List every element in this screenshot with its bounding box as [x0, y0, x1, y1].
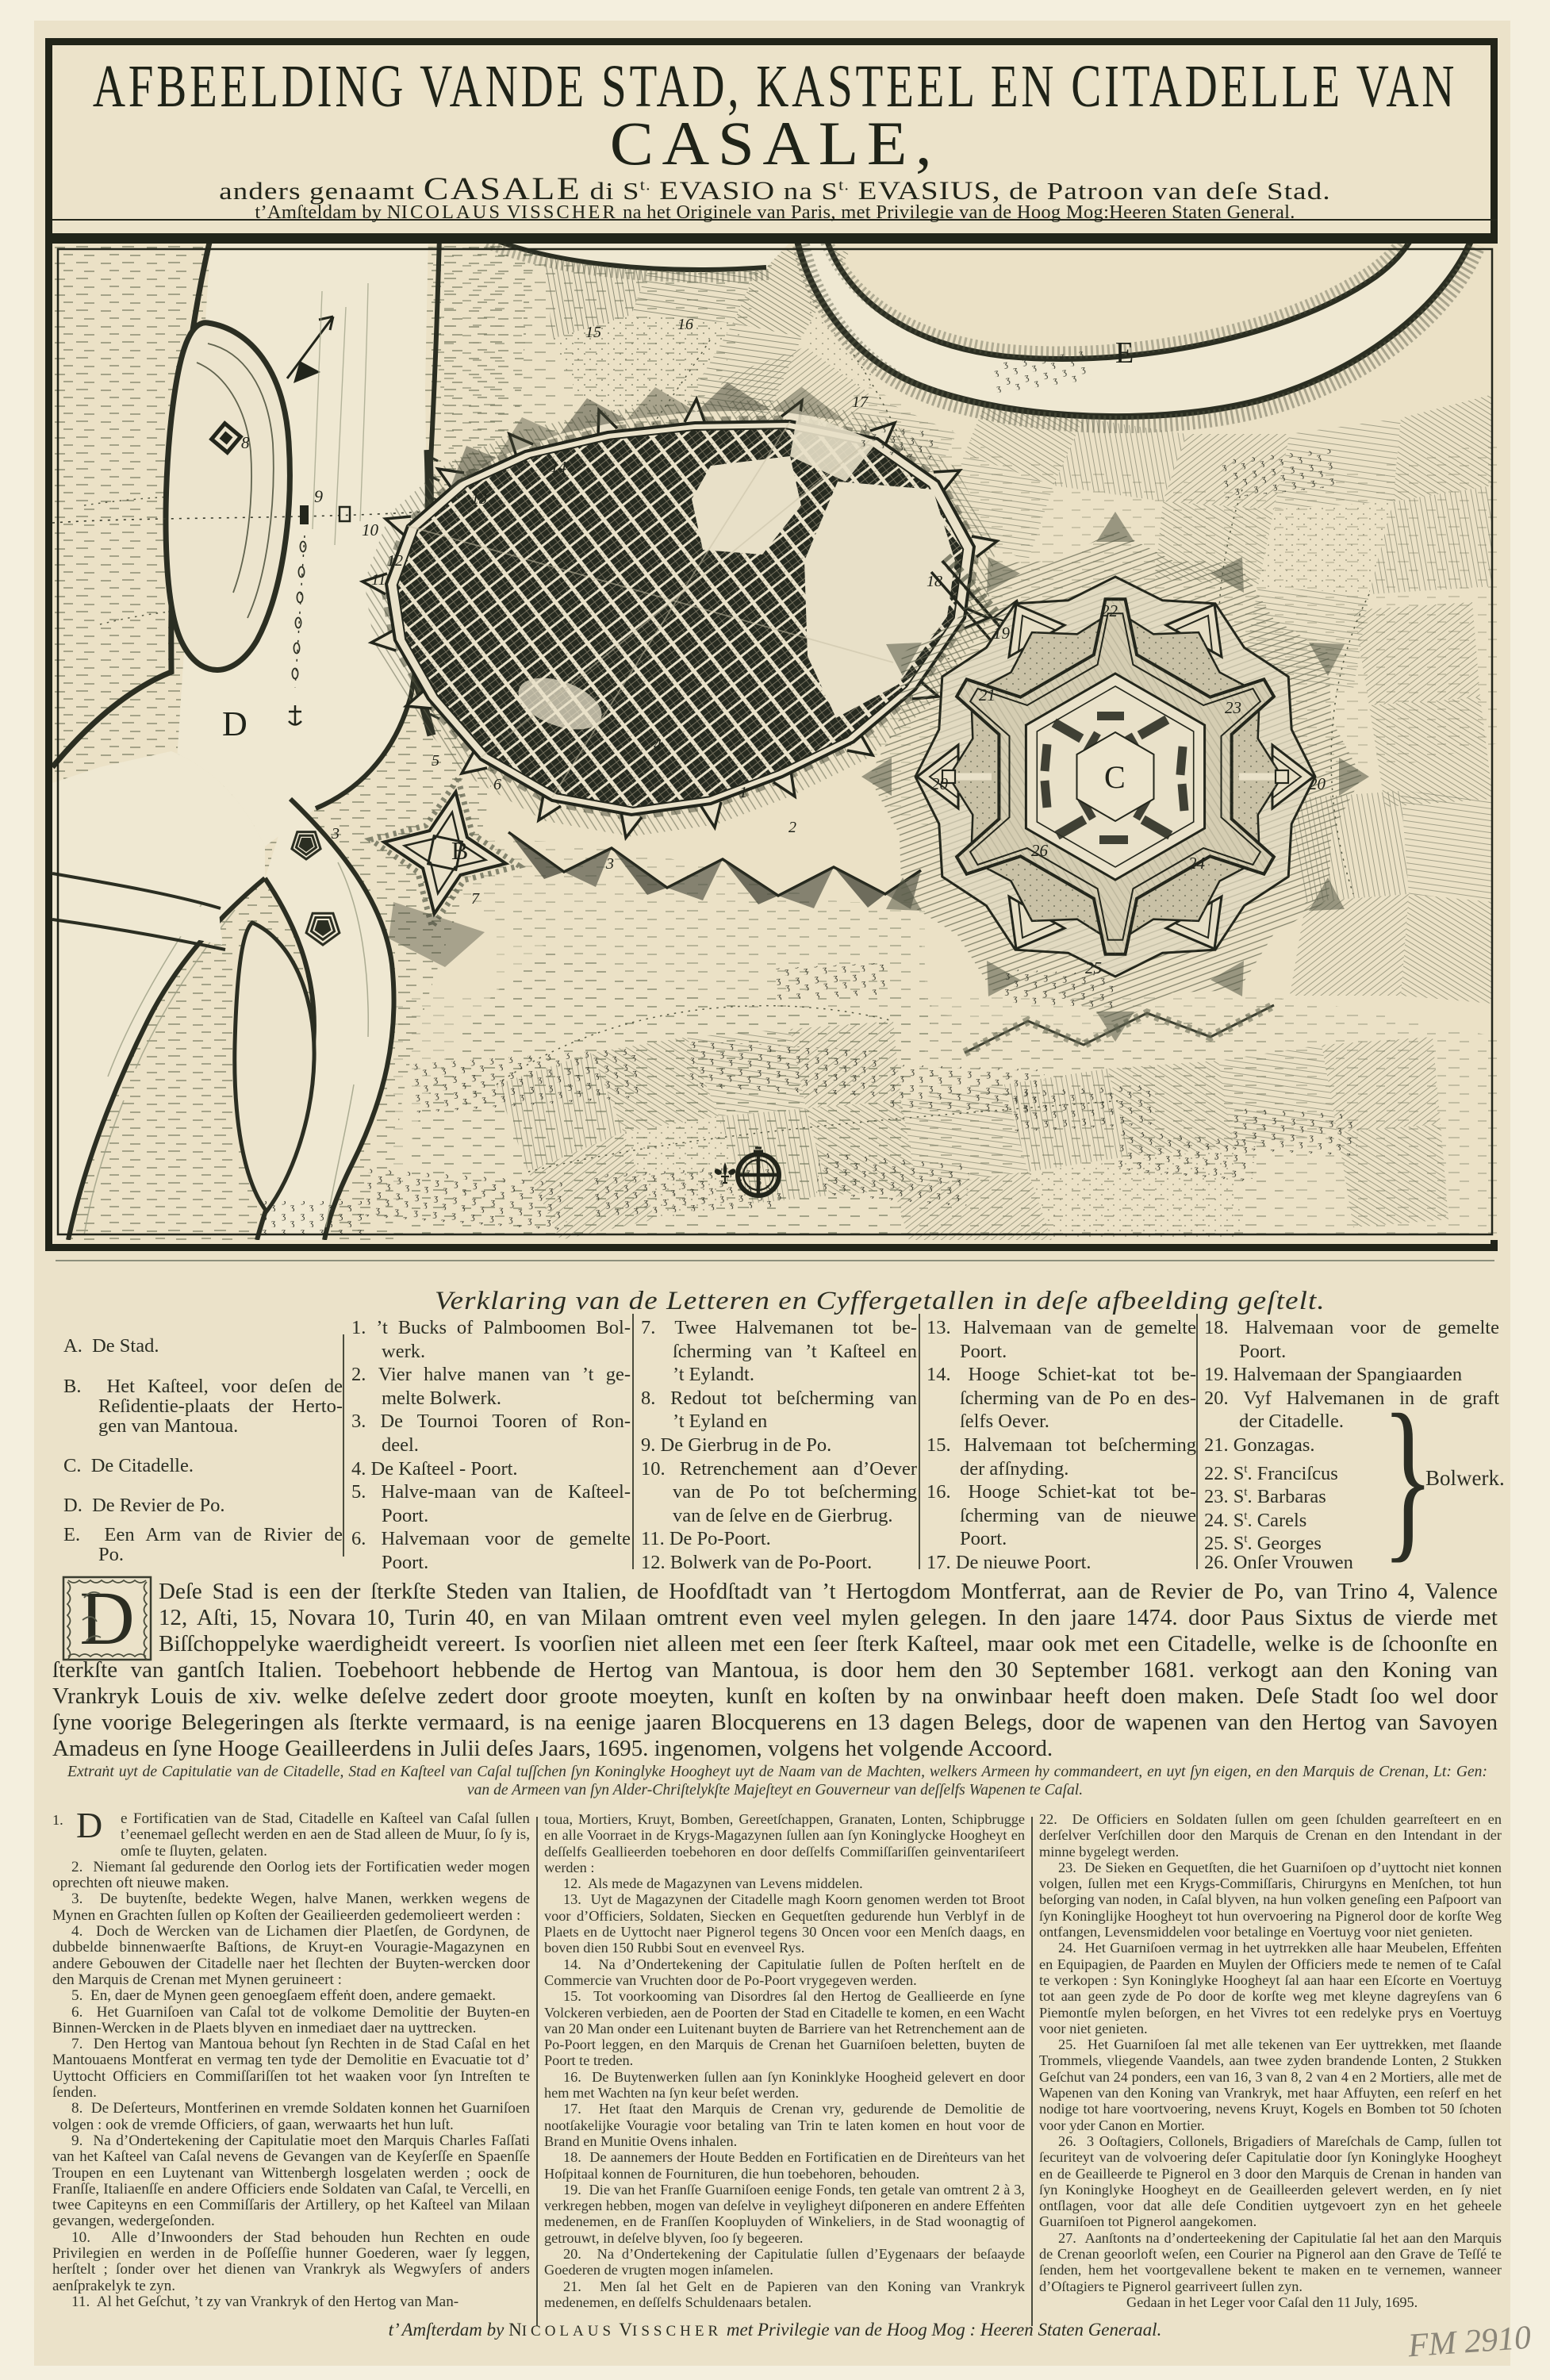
svg-text:20: 20 — [931, 774, 949, 793]
svg-text:7: 7 — [471, 890, 480, 908]
svg-text:19: 19 — [993, 624, 1011, 643]
svg-text:24: 24 — [1188, 854, 1206, 873]
svg-text:20: 20 — [1309, 774, 1326, 793]
svg-text:12: 12 — [387, 552, 403, 570]
svg-text:3: 3 — [605, 855, 614, 873]
svg-text:18: 18 — [927, 573, 942, 590]
svg-text:14: 14 — [551, 459, 566, 476]
svg-text:8: 8 — [241, 433, 250, 452]
svg-text:C: C — [1104, 759, 1126, 795]
svg-text:17: 17 — [852, 393, 869, 411]
svg-text:1: 1 — [739, 784, 747, 801]
svg-text:3: 3 — [331, 825, 340, 843]
svg-text:10: 10 — [362, 520, 379, 539]
svg-text:E: E — [1115, 336, 1134, 370]
svg-text:21: 21 — [979, 685, 996, 704]
svg-text:23: 23 — [1225, 698, 1241, 717]
svg-text:16: 16 — [677, 316, 693, 333]
svg-text:2: 2 — [788, 819, 796, 836]
svg-text:15: 15 — [585, 324, 601, 341]
svg-text:22: 22 — [1101, 601, 1118, 620]
svg-text:D: D — [79, 1576, 134, 1660]
svg-text:13: 13 — [471, 490, 487, 508]
svg-text:B: B — [451, 836, 468, 865]
svg-text:9: 9 — [314, 486, 323, 506]
svg-text:11: 11 — [371, 571, 386, 589]
svg-text:6: 6 — [493, 776, 501, 793]
svg-text:4: 4 — [654, 736, 662, 754]
svg-text:5: 5 — [432, 752, 439, 770]
svg-text:26: 26 — [1031, 841, 1049, 860]
svg-text:D: D — [222, 704, 247, 743]
